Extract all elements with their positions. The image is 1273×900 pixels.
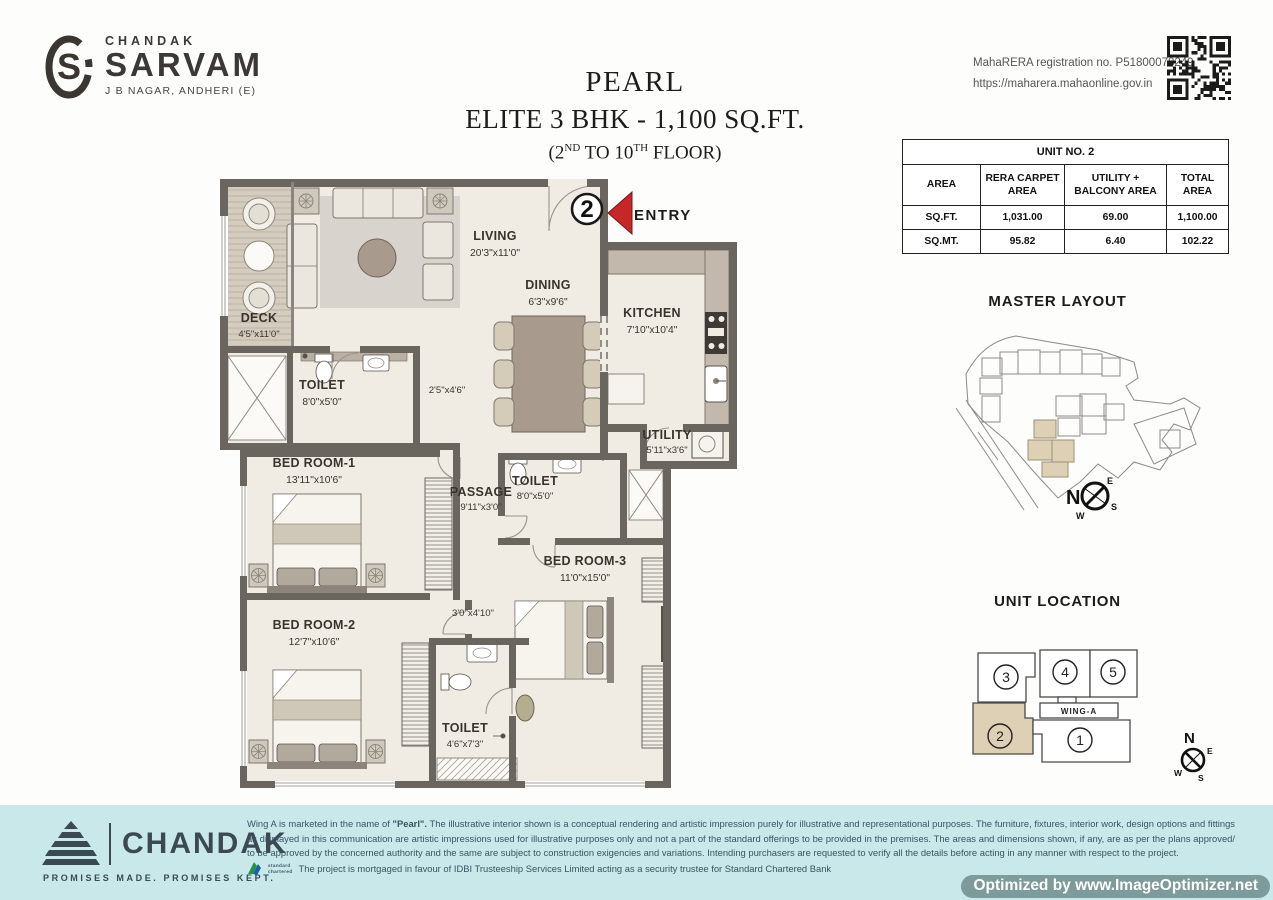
ledge-hatch (437, 758, 517, 780)
title-line3: (2ND TO 10TH FLOOR) (400, 142, 870, 164)
page-title: PEARL ELITE 3 BHK - 1,100 SQ.FT. (2ND TO… (400, 66, 870, 164)
pyramid-logo-icon (42, 819, 100, 869)
unit-number: 2 (580, 196, 593, 223)
wardrobe (402, 643, 429, 746)
svg-text:3'0"x4'10": 3'0"x4'10" (452, 608, 494, 619)
wardrobe (425, 478, 452, 590)
svg-text:6'3"x9'6": 6'3"x9'6" (528, 297, 568, 308)
col-header-utility: UTILITY + BALCONY AREA (1065, 165, 1167, 206)
svg-text:LIVING: LIVING (473, 229, 516, 243)
unit-5-number: 5 (1109, 664, 1117, 680)
unit-location-title: UNIT LOCATION (940, 593, 1175, 610)
title-line1: PEARL (400, 66, 870, 99)
unit-4-number: 4 (1061, 664, 1069, 680)
floor-plan: 2 ENTRY LIVING 20'3"x11'0" DINING 6'3"x9… (215, 176, 745, 796)
compass-master: N E S W (1066, 476, 1117, 521)
rera-url[interactable]: https://maharera.mahaonline.gov.in (973, 74, 1194, 95)
svg-text:S: S (57, 46, 81, 87)
standard-chartered-wordmark: standard chartered (268, 863, 293, 874)
svg-text:TOILET: TOILET (299, 378, 345, 392)
svg-text:13'11"x10'6": 13'11"x10'6" (286, 475, 342, 486)
svg-text:4'5"x11'0": 4'5"x11'0" (238, 329, 279, 340)
svg-text:PASSAGE: PASSAGE (450, 485, 512, 499)
entry-arrow-icon (608, 192, 632, 234)
rera-registration: MahaRERA registration no. P51800078249 (973, 53, 1194, 74)
svg-text:20'3"x11'0": 20'3"x11'0" (470, 248, 520, 259)
standard-chartered-icon (247, 861, 262, 876)
unit-area-table: UNIT NO. 2 AREA RERA CARPET AREA UTILITY… (902, 139, 1229, 254)
rera-info: MahaRERA registration no. P51800078249 h… (973, 53, 1194, 94)
cs-monogram-icon: S (44, 34, 94, 100)
svg-text:N: N (1066, 487, 1080, 509)
svg-text:E: E (1107, 476, 1113, 486)
compass-unit-location: N E W S (1174, 730, 1213, 783)
svg-text:4'6"x7'3": 4'6"x7'3" (447, 739, 484, 750)
svg-text:S: S (1198, 773, 1204, 783)
svg-text:N: N (1184, 730, 1195, 747)
deck-partition (291, 182, 294, 346)
svg-text:E: E (1207, 746, 1213, 756)
col-header-area: AREA (903, 165, 981, 206)
svg-text:S: S (1111, 502, 1117, 512)
qr-code (1167, 36, 1231, 100)
svg-text:2'5"x4'6": 2'5"x4'6" (429, 385, 466, 396)
footer-tagline: PROMISES MADE. PROMISES KEPT. (43, 873, 275, 883)
unit-2-number: 2 (996, 728, 1004, 744)
col-header-total: TOTAL AREA (1167, 165, 1229, 206)
watermark: Optimized by www.ImageOptimizer.net (961, 875, 1270, 898)
svg-text:12'7"x10'6": 12'7"x10'6" (289, 637, 340, 648)
table-row: SQ.FT. 1,031.00 69.00 1,100.00 (903, 206, 1229, 230)
svg-text:KITCHEN: KITCHEN (623, 306, 681, 320)
title-line2: ELITE 3 BHK - 1,100 SQ.FT. (400, 104, 870, 135)
table-row: SQ.MT. 95.82 6.40 102.22 (903, 230, 1229, 254)
footer-mortgage-note: standard chartered The project is mortga… (247, 861, 831, 876)
svg-text:BED ROOM-3: BED ROOM-3 (544, 554, 627, 568)
svg-text:7'10"x10'4": 7'10"x10'4" (627, 325, 678, 336)
svg-text:TOILET: TOILET (442, 721, 488, 735)
svg-text:8'0"x5'0": 8'0"x5'0" (302, 397, 342, 408)
svg-text:UTILITY: UTILITY (642, 428, 692, 442)
master-layout-title: MASTER LAYOUT (940, 293, 1175, 310)
svg-text:W: W (1174, 768, 1183, 778)
project-location: J B NAGAR, ANDHERI (E) (105, 85, 263, 97)
living-furniture (287, 188, 460, 308)
master-layout-map: N E S W (938, 312, 1228, 537)
svg-text:11'0"x15'0": 11'0"x15'0" (560, 573, 610, 584)
svg-text:BED ROOM-2: BED ROOM-2 (273, 618, 356, 632)
table-title: UNIT NO. 2 (903, 140, 1229, 165)
svg-text:8'0"x5'0": 8'0"x5'0" (517, 491, 554, 502)
unit-1-number: 1 (1076, 732, 1084, 748)
svg-text:9'11"x3'0": 9'11"x3'0" (460, 502, 501, 513)
project-name: SARVAM (105, 48, 263, 83)
footer-disclaimer: Wing A is marketed in the name of "Pearl… (247, 817, 1235, 861)
svg-text:DECK: DECK (241, 311, 278, 325)
svg-text:TOILET: TOILET (512, 474, 558, 488)
deck-furniture (243, 198, 275, 314)
washing-machine-icon (692, 428, 723, 458)
wing-a-label: WING-A (1061, 707, 1097, 716)
svg-text:W: W (1076, 511, 1085, 521)
svg-text:DINING: DINING (525, 278, 571, 292)
svg-text:5'11"x3'6": 5'11"x3'6" (646, 445, 687, 456)
unit-3-number: 3 (1002, 669, 1010, 685)
entry-label: ENTRY (634, 207, 692, 224)
col-header-carpet: RERA CARPET AREA (981, 165, 1065, 206)
divider (109, 823, 111, 865)
unit-location-map: 3 4 5 2 1 WING-A N E W S (940, 640, 1230, 800)
dining-furniture (494, 316, 603, 432)
highlighted-buildings (1028, 420, 1074, 477)
brand-logo: S CHANDAK SARVAM J B NAGAR, ANDHERI (E) (44, 34, 263, 100)
svg-text:BED ROOM-1: BED ROOM-1 (273, 456, 356, 470)
